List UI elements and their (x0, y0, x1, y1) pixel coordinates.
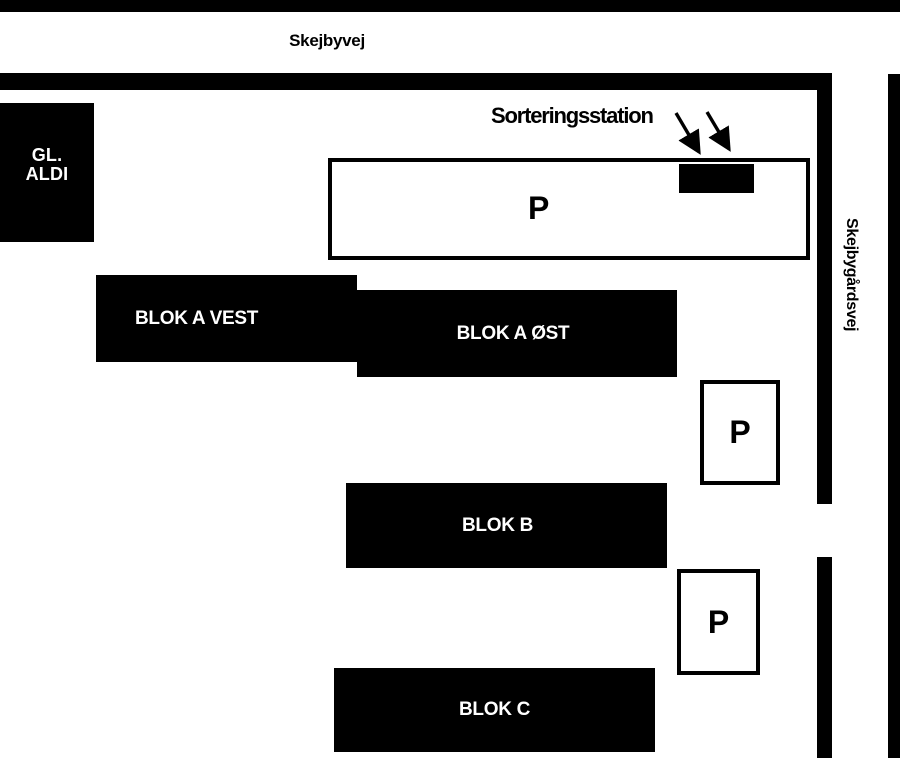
blok-c-label: BLOK C (459, 699, 530, 721)
building-gl-aldi: GL. ALDI (0, 103, 94, 242)
building-blok-b: BLOK B (346, 483, 667, 568)
building-blok-a-vest: BLOK A VEST (96, 275, 357, 362)
parking-lot-lower: P (677, 569, 760, 675)
parking-main-label: P (528, 190, 549, 227)
street-label-skejbyvej: Skejbyvej (247, 31, 407, 51)
street-label-skejbygaardsvej: Skejbygårdsvej (842, 218, 860, 368)
sorting-station-box (679, 164, 754, 193)
blok-a-oest-label: BLOK A ØST (457, 323, 570, 345)
parking-lot-mid: P (700, 380, 780, 485)
parking-mid-label: P (729, 414, 750, 451)
blok-a-vest-label: BLOK A VEST (135, 308, 258, 330)
skejbygaardsvej-road-outer (888, 74, 900, 758)
sorting-station-arrows-icon (660, 105, 750, 165)
skejbyvej-road (0, 73, 832, 90)
building-blok-a-oest: BLOK A ØST (357, 290, 677, 377)
building-blok-c: BLOK C (334, 668, 655, 752)
site-plan-map: Skejbyvej Skejbygårdsvej GL. ALDI P Sort… (0, 0, 900, 758)
blok-b-label: BLOK B (462, 515, 533, 537)
gl-aldi-label-line1: GL. (32, 146, 63, 165)
gl-aldi-label-line2: ALDI (26, 165, 69, 184)
skejbygaardsvej-road-inner-upper (817, 90, 832, 504)
top-edge-road (0, 0, 900, 12)
skejbygaardsvej-road-inner-lower (817, 557, 832, 758)
parking-lower-label: P (708, 604, 729, 641)
sorting-station-label: Sorteringsstation (491, 103, 653, 129)
